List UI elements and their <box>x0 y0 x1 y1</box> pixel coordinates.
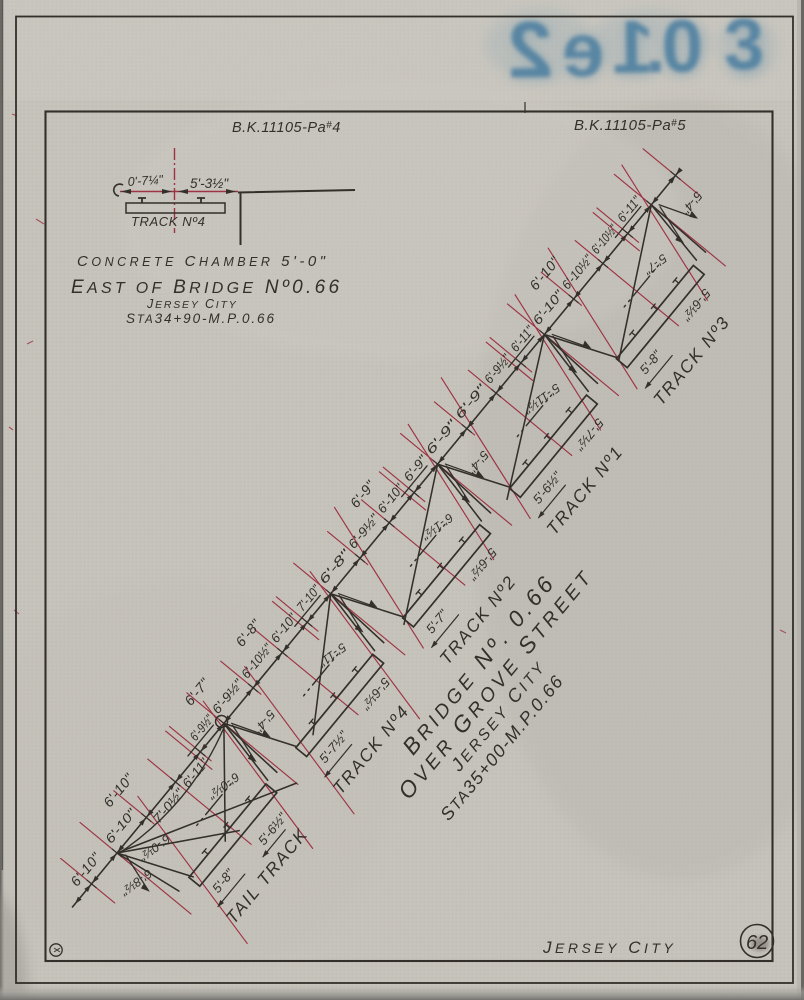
svg-text:JERSEY CITY: JERSEY CITY <box>542 938 676 957</box>
svg-text:B.K.11105-Pa#4: B.K.11105-Pa#4 <box>232 120 341 136</box>
svg-text:B.K.11105-Pa#5: B.K.11105-Pa#5 <box>574 117 686 134</box>
svg-text:5'-3½": 5'-3½" <box>190 176 229 191</box>
svg-text:CONCRETE CHAMBER 5'-0": CONCRETE CHAMBER 5'-0" <box>77 253 329 270</box>
svg-text:TRACK Nº4: TRACK Nº4 <box>131 214 205 229</box>
svg-text:EAST OF BRIDGE Nº0.66: EAST OF BRIDGE Nº0.66 <box>71 277 342 298</box>
svg-text:STA34+90-M.P.0.66: STA34+90-M.P.0.66 <box>126 311 276 326</box>
svg-text:JERSEY CITY: JERSEY CITY <box>146 297 238 311</box>
svg-text:0'-7¼": 0'-7¼" <box>127 173 164 189</box>
